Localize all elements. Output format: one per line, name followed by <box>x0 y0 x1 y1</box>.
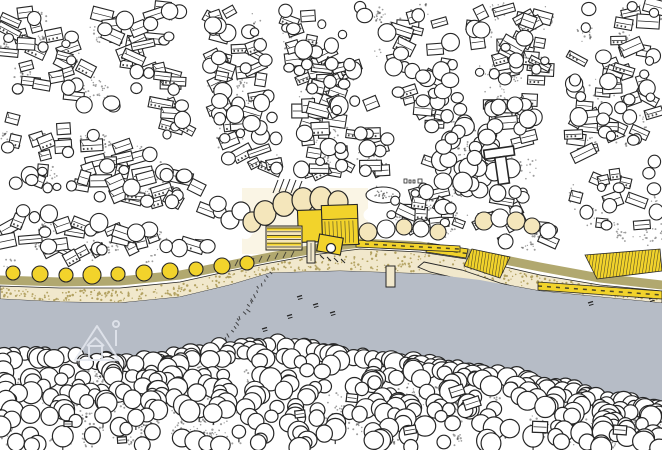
map-svg <box>0 0 662 450</box>
map-illustration <box>0 0 662 450</box>
